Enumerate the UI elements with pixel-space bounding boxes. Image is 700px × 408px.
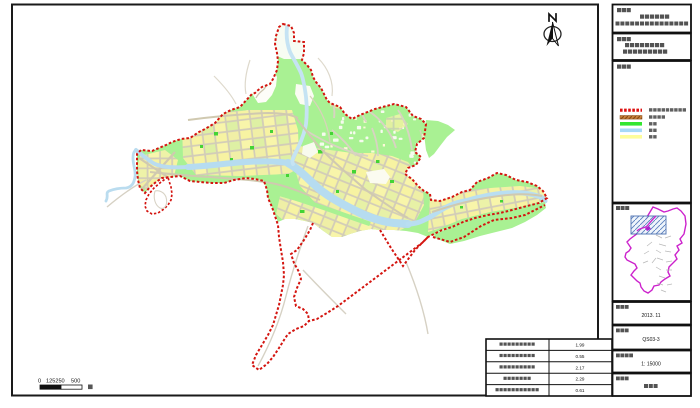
svg-text:1.99: 1.99 — [576, 343, 585, 348]
svg-text:1: 15000: 1: 15000 — [641, 362, 661, 368]
svg-text:500: 500 — [71, 379, 80, 385]
svg-text:0.55: 0.55 — [576, 354, 585, 359]
svg-text:0: 0 — [38, 379, 41, 385]
svg-text:0.61: 0.61 — [576, 388, 585, 393]
svg-text:QS03-3: QS03-3 — [642, 337, 659, 343]
svg-text:2013. 11: 2013. 11 — [641, 313, 660, 319]
svg-text:125250: 125250 — [46, 379, 65, 385]
svg-text:2.29: 2.29 — [576, 377, 585, 382]
svg-text:2.17: 2.17 — [576, 365, 585, 370]
